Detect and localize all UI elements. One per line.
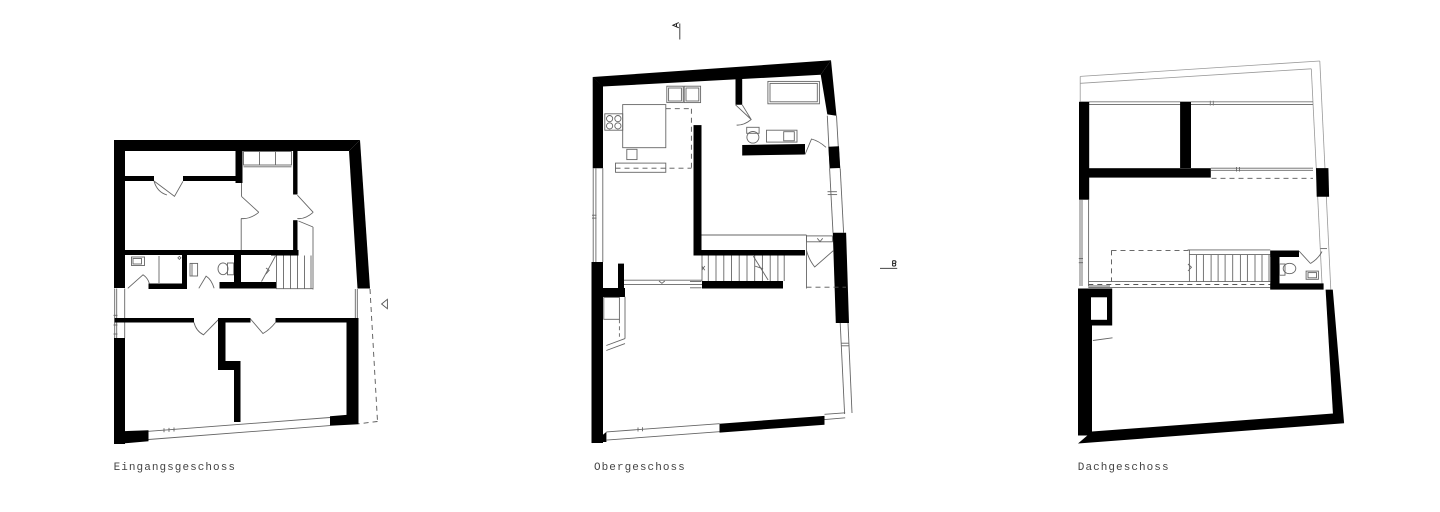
svg-text:Eingangsgeschoss: Eingangsgeschoss <box>114 462 236 474</box>
svg-text:Dachgeschoss: Dachgeschoss <box>1078 462 1170 474</box>
svg-text:Obergeschoss: Obergeschoss <box>594 462 686 474</box>
